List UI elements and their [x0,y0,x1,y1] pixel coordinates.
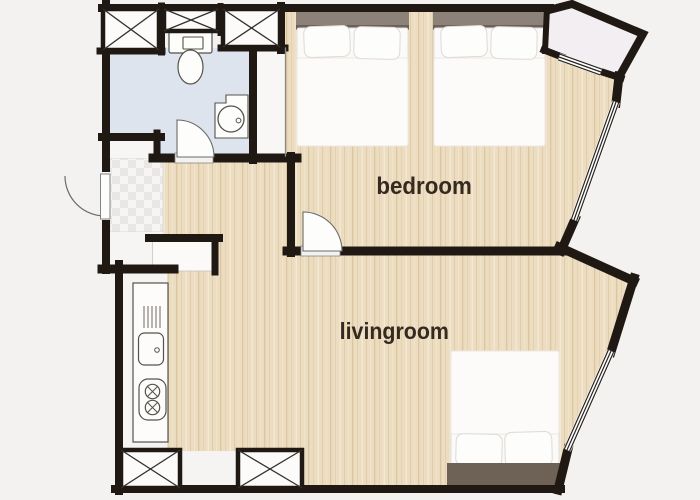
faucet-icon [155,348,160,353]
bottom-gap [180,452,238,489]
double-bed-2 [433,7,546,146]
bed-headboard [447,463,561,486]
bedroom-niche [253,48,285,158]
closet-top-1 [103,9,159,50]
entry-tiled-floor [110,158,163,232]
closet-bottom-1 [121,450,180,488]
door-leaf [101,174,111,219]
pillow [456,433,503,466]
floor-plan: bedroom livingroom [0,0,700,500]
bedroom-right-wall [616,76,619,103]
pillow [505,431,553,466]
kitchen-counter [133,283,168,442]
bed-duvet [451,351,559,434]
closet-top-2 [164,9,218,31]
bedroom-label: bedroom [376,172,471,199]
closet-top-3 [223,9,280,47]
double-bed-1 [296,7,409,146]
two-burner-stove [139,379,166,420]
floor-plan-page: bedroom livingroom [0,0,700,500]
kitchen-sink [139,333,164,365]
double-bed-3 [447,351,561,486]
closet-bottom-2 [238,450,302,488]
livingroom-label: livingroom [340,318,449,344]
